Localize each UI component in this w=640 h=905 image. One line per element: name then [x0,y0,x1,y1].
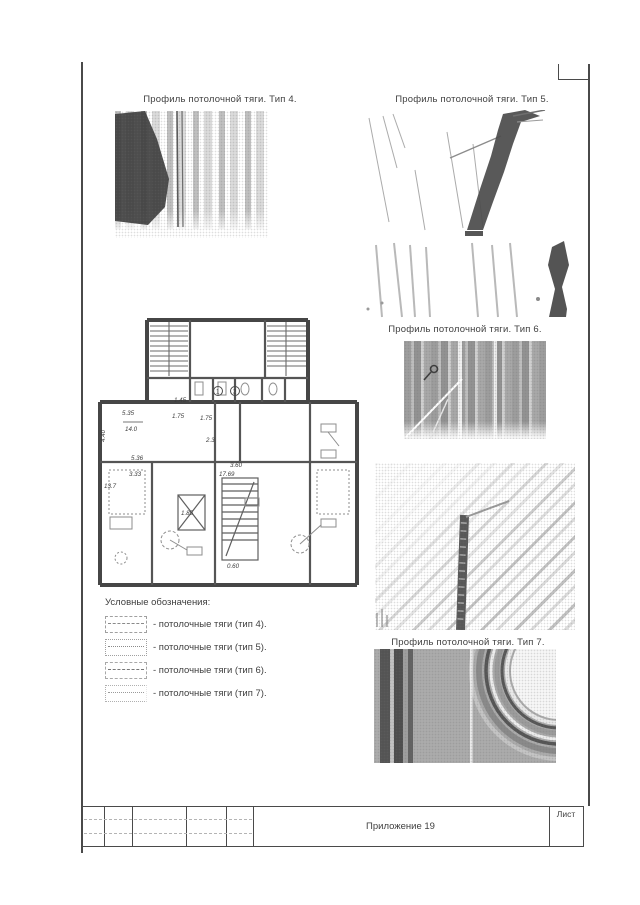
legend-item-type4: - потолочные тяги (тип 4). [105,616,355,632]
stamp-divider [186,807,187,846]
dim-label: 1.75 [172,413,185,420]
corner-tab-hline [558,79,589,80]
legend-label-type5: - потолочные тяги (тип 5). [153,642,267,653]
dim-label: 2.3 [205,437,215,444]
photo-ceiling-moulding-type6 [404,341,546,439]
figure-title-type4: Профиль потолочной тяги. Тип 4. [120,94,320,105]
photo-type6-overlay [404,341,546,439]
dim-label: 17.69 [219,471,235,478]
legend: Условные обозначения: - потолочные тяги … [105,597,355,708]
legend-swatch-type6-icon [105,662,147,679]
figure-title-type5: Профиль потолочной тяги. Тип 5. [372,94,572,105]
dim-label: 3.33 [129,471,142,478]
photo-ceiling-strip [352,239,573,319]
appendix-label: Приложение 19 [254,807,547,846]
stamp-faint-row-line [84,819,252,820]
dim-label: 1.85 [181,510,194,517]
stamp-divider [226,807,227,846]
photo-ceiling-moulding-type4 [115,111,268,238]
legend-item-type7: - потолочные тяги (тип 7). [105,685,355,701]
dim-label: 3.60 [230,462,243,469]
dim-label: 14.0 [125,426,138,433]
photo-type5-overlay [355,110,547,232]
scanned-document-page: Профиль потолочной тяги. Тип 4. Профиль … [0,0,640,905]
corner-tab-vline [558,64,559,80]
legend-label-type4: - потолочные тяги (тип 4). [153,619,267,630]
photo-ceiling-moulding-type5 [355,110,547,232]
photo-ceiling-moulding-type7 [374,649,556,763]
frame-right-border [588,64,590,806]
photo-diagonal-overlay [375,463,575,630]
photo-ceiling-diagonal [375,463,575,630]
legend-label-type6: - потолочные тяги (тип 6). [153,665,267,676]
dim-label: 5.36 [131,455,144,462]
dim-label: 5.35 [122,410,135,417]
legend-swatch-type7-icon [105,685,147,702]
photo-strip-overlay [352,239,573,319]
dim-label: 1.75 [200,415,213,422]
dim-label: 4.40 [100,429,107,442]
dim-label: 1.45 [174,397,187,404]
frame-left-border [81,62,83,853]
scan-smudge [465,231,483,236]
figure-title-type6: Профиль потолочной тяги. Тип 6. [365,324,565,335]
dim-label: 13.7 [104,483,117,490]
room-number: 2 [233,390,237,396]
legend-item-type6: - потолочные тяги (тип 6). [105,662,355,678]
stamp-divider [104,807,105,846]
legend-swatch-type4-icon [105,616,147,633]
photo-type7-overlay [374,649,556,763]
legend-label-type7: - потолочные тяги (тип 7). [153,688,267,699]
stamp-divider [132,807,133,846]
dim-label: 0.60 [227,563,240,570]
legend-title: Условные обозначения: [105,597,355,608]
legend-item-type5: - потолочные тяги (тип 5). [105,639,355,655]
title-block: Приложение 19 Лист [81,806,584,847]
sheet-label: Лист [551,809,581,819]
stamp-faint-row-line [84,833,252,834]
figure-title-type7: Профиль потолочной тяги. Тип 7. [368,637,568,648]
floor-plan-drawing: 5.35 14.0 5.36 3.33 13.7 1.75 1.75 1.45 … [95,312,367,594]
legend-swatch-type5-icon [105,639,147,656]
photo-type4-overlay [115,111,268,238]
